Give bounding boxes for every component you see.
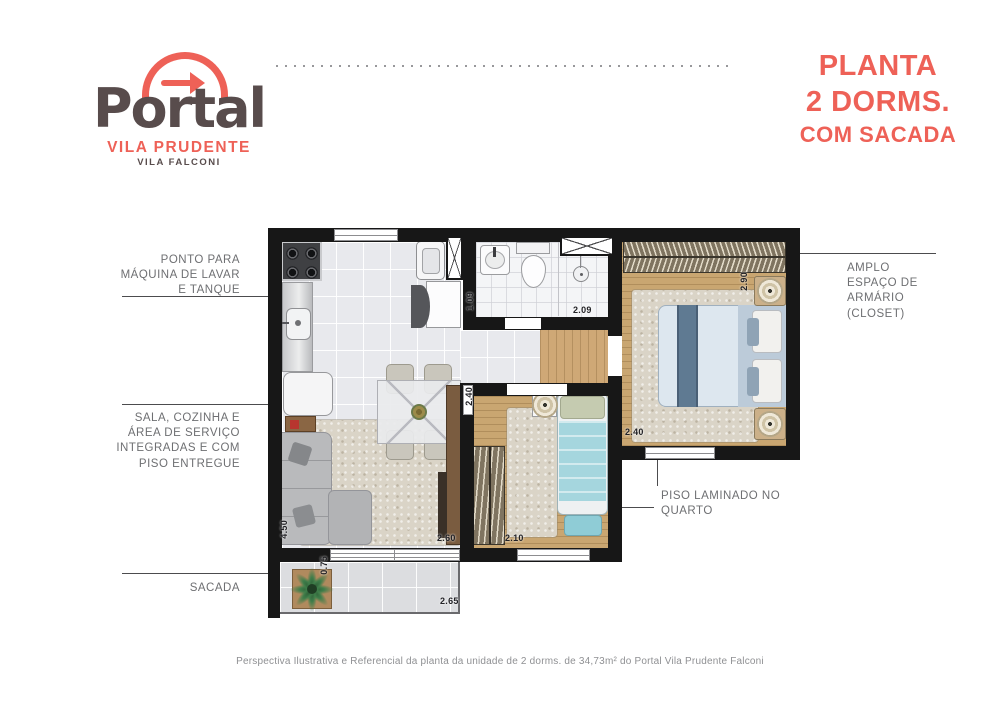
laundry-tank: [416, 241, 445, 280]
dim-master-width: 2.40: [625, 427, 644, 437]
callout-closet: AMPLO ESPAÇO DE ARMÁRIO (CLOSET): [847, 261, 957, 322]
disclaimer-text: Perspectiva Ilustrativa e Referencial da…: [0, 656, 1000, 667]
bedroom2-rug: [507, 408, 557, 537]
sink-drain: [295, 320, 301, 326]
tv: [438, 472, 447, 538]
stove: [281, 241, 322, 281]
page-title: PLANTA 2 DORMS. COM SACADA: [780, 52, 976, 146]
brand-name: Portal: [84, 82, 274, 136]
dotted-separator: [276, 65, 728, 67]
sliding-door-divider: [394, 550, 395, 560]
shower-head-center: [580, 273, 583, 276]
closet-shelf: [623, 240, 786, 257]
balcony-sliding-door: [330, 549, 460, 561]
floor-plan: 1.09 2.09 2.90 2.40 2.40 2.10 4.50 2.60 …: [268, 228, 800, 618]
master-door: [608, 336, 622, 376]
wall-right: [786, 228, 800, 460]
wall-balcony-left: [268, 562, 280, 618]
dim-bedroom2-width: 2.40: [464, 387, 474, 406]
closet-shelf: [623, 257, 786, 273]
bed-cushion: [747, 318, 759, 346]
dim-bathroom-width: 1.09: [465, 292, 475, 311]
ventilation-shaft: [560, 236, 614, 256]
toilet-tank: [516, 242, 550, 254]
kitchen-window: [334, 229, 398, 241]
bathroom-door: [505, 318, 541, 329]
dim-living-length: 4.50: [279, 520, 289, 539]
dim-balcony-length: 2.65: [440, 596, 459, 606]
shower-partition: [558, 242, 559, 316]
bed-bench: [564, 515, 602, 536]
sink-tap: [281, 322, 289, 324]
tv-console: [446, 385, 461, 545]
plant-center: [307, 584, 317, 594]
dim-bathroom-length: 2.09: [573, 305, 592, 315]
side-table-decor: [290, 420, 299, 429]
bedroom2-window: [517, 549, 590, 561]
hall-tile-floor: [460, 330, 540, 383]
brand-development: VILA FALCONI: [84, 157, 274, 168]
wall-left: [268, 228, 282, 562]
side-table: [285, 416, 316, 432]
bathroom-sink-tap: [493, 247, 496, 257]
title-line-1: PLANTA: [780, 52, 976, 81]
brand-location: VILA PRUDENTE: [84, 139, 274, 157]
single-bed-blanket: [559, 421, 606, 501]
title-line-2: 2 DORMS.: [780, 88, 976, 117]
ventilation-shaft: [446, 236, 463, 280]
kitchen-sink: [286, 308, 311, 340]
callout-balcony: SACADA: [88, 581, 240, 596]
callout-laundry: PONTO PARA MÁQUINA DE LAVAR E TANQUE: [88, 253, 240, 299]
bed-cushion: [747, 367, 759, 396]
wall-bathroom-bottom: [463, 317, 622, 330]
washing-machine: [426, 281, 461, 328]
dim-master-length: 2.90: [739, 272, 749, 291]
bathroom-sink: [480, 245, 510, 275]
bed-runner: [677, 305, 698, 407]
laundry-tank-basin: [422, 248, 440, 274]
wardrobe: [473, 446, 505, 545]
dim-balcony-width: 0.75: [319, 556, 329, 575]
sofa-chaise: [328, 490, 372, 545]
single-bed-pillow: [560, 396, 605, 419]
fridge: [283, 372, 333, 416]
shower-head: [573, 266, 589, 282]
dim-living-width: 2.60: [437, 533, 456, 543]
wardrobe-divider: [489, 447, 491, 544]
washing-machine-drum: [411, 285, 430, 328]
dim-bedroom2-length: 2.10: [505, 533, 524, 543]
callout-living: SALA, COZINHA E ÁREA DE SERVIÇO INTEGRAD…: [88, 411, 240, 472]
master-window: [645, 447, 715, 459]
table-centerpiece: [411, 404, 427, 420]
title-line-3: COM SACADA: [780, 124, 976, 146]
nightstand-lamp: [757, 278, 783, 304]
nightstand-lamp: [757, 411, 783, 437]
bedroom2-door: [507, 384, 567, 395]
